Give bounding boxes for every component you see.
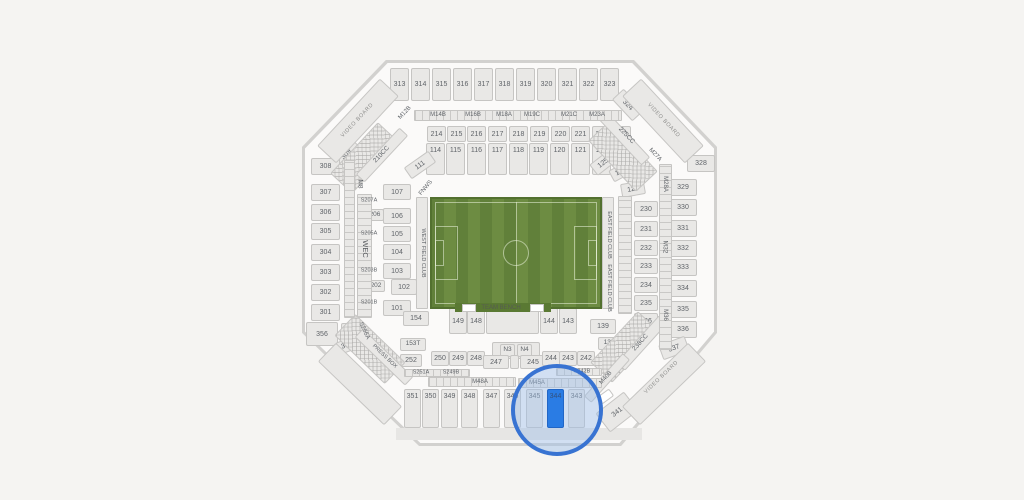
section-label: 214: [431, 131, 443, 138]
section-316[interactable]: 316: [453, 68, 472, 101]
field-marking: [435, 240, 444, 266]
section-label: 304: [320, 249, 332, 256]
section-118[interactable]: 118: [509, 143, 528, 175]
section-231[interactable]: 231: [634, 221, 658, 237]
m14b-label: M14B: [430, 112, 446, 118]
s201b-label: S201B: [361, 300, 378, 306]
m27a-label: M27A: [647, 147, 662, 163]
section-350[interactable]: 350: [422, 389, 439, 428]
section-319[interactable]: 319: [516, 68, 535, 101]
section-label: 114: [430, 147, 441, 154]
east-inner-strip[interactable]: [618, 196, 632, 314]
wec-label: WEC: [361, 240, 369, 258]
section-label: 106: [391, 213, 403, 220]
section-102[interactable]: 102: [391, 279, 417, 295]
section-220[interactable]: 220: [551, 126, 570, 142]
section-216[interactable]: 216: [467, 126, 486, 142]
section-label: 319: [520, 81, 532, 88]
section-217[interactable]: 217: [488, 126, 507, 142]
section-314[interactable]: 314: [411, 68, 430, 101]
section-143[interactable]: 143: [559, 308, 577, 334]
section-label: 121: [575, 147, 587, 154]
section-label: 321: [562, 81, 574, 88]
section-219[interactable]: 219: [530, 126, 549, 142]
section-305[interactable]: 305: [311, 223, 340, 240]
section-label: 103: [391, 268, 403, 275]
section-label: 308: [320, 163, 332, 170]
section-label: 315: [436, 81, 448, 88]
section-329[interactable]: 329: [669, 179, 697, 196]
section-label: 252: [405, 357, 417, 364]
section-321[interactable]: 321: [558, 68, 577, 101]
soccer-field: [430, 197, 602, 309]
section-215[interactable]: 215: [447, 126, 466, 142]
section-label: 218: [513, 131, 525, 138]
section-label: 216: [471, 131, 483, 138]
section-label: 235: [640, 300, 652, 307]
m32-label: M32: [661, 241, 668, 254]
section-235[interactable]: 235: [634, 295, 658, 311]
section-335[interactable]: 335: [669, 301, 697, 318]
field-marking: [588, 240, 597, 266]
section-label: 334: [677, 285, 689, 292]
section-label: 245: [527, 359, 539, 366]
section-332[interactable]: 332: [669, 240, 697, 257]
section-331[interactable]: 331: [669, 220, 697, 237]
section-label: 244: [545, 355, 557, 362]
section-221[interactable]: 221: [571, 126, 590, 142]
west-field-club-label: WEST FIELD CLUB: [419, 228, 425, 277]
east-field-club-label: EAST FIELD CLUB: [605, 264, 611, 312]
section-label: 119: [533, 147, 544, 154]
section-214[interactable]: 214: [427, 126, 446, 142]
section-label: 303: [320, 269, 332, 276]
s251a-label: S251A: [413, 370, 430, 376]
section-349[interactable]: 349: [441, 389, 458, 428]
section-label: 120: [554, 147, 566, 154]
section-label: 153T: [406, 341, 421, 348]
section-label: 317: [478, 81, 490, 88]
section-111[interactable]: 111: [404, 151, 437, 180]
m18a-label: M18A: [496, 112, 512, 118]
section-348[interactable]: 348: [461, 389, 478, 428]
m21c-label: M21C: [561, 112, 577, 118]
section-115[interactable]: 115: [446, 143, 465, 175]
section-label: N3: [503, 347, 511, 354]
s205a-label: S205A: [361, 231, 378, 237]
section-label: 330: [677, 204, 689, 211]
section-250[interactable]: 250: [431, 351, 449, 366]
section-301[interactable]: 301: [311, 304, 340, 321]
section-label: 335: [677, 306, 689, 313]
section-317[interactable]: 317: [474, 68, 493, 101]
section-label: 301: [320, 309, 332, 316]
section-302[interactable]: 302: [311, 284, 340, 301]
section-label: 115: [450, 147, 461, 154]
section-label: 148: [470, 318, 482, 325]
team-bench-label: TEAM BENCH: [481, 305, 520, 311]
highlight-ring: [511, 364, 603, 456]
section-304[interactable]: 304: [311, 244, 340, 261]
section-label: 202: [371, 283, 382, 290]
section-label: 322: [583, 81, 595, 88]
section-label: 314: [415, 81, 427, 88]
section-318[interactable]: 318: [495, 68, 514, 101]
section-121[interactable]: 121: [571, 143, 590, 175]
section-249[interactable]: 249: [449, 351, 467, 366]
section-label: 320: [541, 81, 553, 88]
section-119[interactable]: 119: [529, 143, 548, 175]
section-label: 118: [513, 147, 524, 154]
section-label: 144: [543, 318, 555, 325]
east-field-club-label: EAST FIELD CLUB: [605, 211, 611, 259]
section-label: 313: [394, 81, 406, 88]
section-107[interactable]: 107: [383, 184, 411, 200]
section-label: 102: [398, 284, 410, 291]
section-104[interactable]: 104: [383, 244, 411, 260]
section-label: 306: [320, 209, 332, 216]
section-218[interactable]: 218: [509, 126, 528, 142]
section-label: 215: [451, 131, 463, 138]
section-label: 307: [320, 189, 332, 196]
m28a-label: M28A: [662, 176, 668, 192]
section-116[interactable]: 116: [467, 143, 486, 175]
section-label: 139: [597, 323, 609, 330]
section-347[interactable]: 347: [483, 389, 500, 428]
section-306[interactable]: 306: [311, 204, 340, 221]
section-303[interactable]: 303: [311, 264, 340, 281]
section-154[interactable]: 154: [403, 311, 429, 326]
section-label: 231: [640, 226, 652, 233]
section-105[interactable]: 105: [383, 226, 411, 242]
section-label: 149: [452, 318, 464, 325]
section-label: 336: [677, 326, 689, 333]
section-label: 329: [677, 184, 689, 191]
section-label: 111: [414, 159, 427, 171]
section-label: 219: [534, 131, 546, 138]
bench-box: [530, 304, 544, 312]
section-label: 234: [640, 282, 652, 289]
section-label: 248: [470, 355, 482, 362]
section-label: 143: [562, 318, 574, 325]
fnws-label: FNWS: [418, 179, 434, 196]
m16b-label: M16B: [465, 112, 481, 118]
section-139[interactable]: 139: [590, 319, 616, 334]
bench-box: [462, 304, 476, 312]
section-103[interactable]: 103: [383, 263, 411, 279]
section-label: 318: [499, 81, 511, 88]
s249b-label: S249B: [443, 370, 460, 376]
stand-block[interactable]: [510, 355, 519, 369]
section-label: 348: [464, 393, 476, 400]
section-117[interactable]: 117: [488, 143, 507, 175]
m48a-label: M48A: [472, 379, 488, 385]
section-230[interactable]: 230: [634, 201, 658, 217]
section-label: 243: [562, 355, 574, 362]
section-106[interactable]: 106: [383, 208, 411, 224]
section-label: 351: [407, 393, 419, 400]
section-label: 250: [434, 355, 446, 362]
section-307[interactable]: 307: [311, 184, 340, 201]
section-320[interactable]: 320: [537, 68, 556, 101]
field-marking: [503, 240, 529, 266]
section-label: 116: [471, 147, 482, 154]
section-label: 347: [486, 393, 498, 400]
section-label: 333: [677, 264, 689, 271]
section-label: N4: [520, 347, 528, 354]
section-label: 349: [444, 393, 456, 400]
section-330[interactable]: 330: [669, 199, 697, 216]
section-label: 105: [391, 231, 403, 238]
m23a-label: M23A: [589, 112, 605, 118]
section-label: 305: [320, 228, 332, 235]
stadium-seating-map: 3133143153163173183193203213223233243092…: [0, 0, 1024, 500]
m19c-label: M19C: [524, 112, 540, 118]
section-label: 104: [391, 249, 403, 256]
section-label: 316: [457, 81, 469, 88]
section-label: 249: [452, 355, 464, 362]
section-label: 328: [695, 160, 707, 167]
section-label: 302: [320, 289, 332, 296]
s207a-label: S207A: [361, 198, 378, 204]
section-322[interactable]: 322: [579, 68, 598, 101]
m12b-label: M12B: [397, 105, 412, 121]
section-333[interactable]: 333: [669, 259, 697, 276]
section-label: 217: [492, 131, 504, 138]
section-label: 101: [391, 305, 403, 312]
section-label: 247: [490, 359, 502, 366]
section-label: 107: [391, 189, 403, 196]
section-334[interactable]: 334: [669, 280, 697, 297]
section-234[interactable]: 234: [634, 277, 658, 293]
section-356[interactable]: 356: [306, 322, 338, 346]
section-315[interactable]: 315: [432, 68, 451, 101]
mezzanine-east-strip[interactable]: [659, 164, 672, 350]
section-233[interactable]: 233: [634, 258, 658, 274]
section-label: 332: [677, 245, 689, 252]
section-label: 323: [604, 81, 616, 88]
west-upper-strip[interactable]: [344, 160, 355, 318]
m36-label: M36: [662, 309, 668, 321]
m8-label: M8: [356, 179, 363, 188]
section-label: 221: [575, 131, 587, 138]
section-247[interactable]: 247: [483, 355, 509, 369]
section-label: 341: [610, 406, 624, 419]
section-label: 331: [677, 225, 689, 232]
section-351[interactable]: 351: [404, 389, 421, 428]
section-label: 220: [555, 131, 567, 138]
section-232[interactable]: 232: [634, 240, 658, 256]
section-label: 233: [640, 263, 652, 270]
section-label: 356: [316, 331, 328, 338]
section-153t[interactable]: 153T: [400, 338, 426, 351]
section-label: 232: [640, 245, 652, 252]
section-120[interactable]: 120: [550, 143, 569, 175]
section-label: 154: [410, 315, 422, 322]
s203b-label: S203B: [361, 268, 378, 274]
section-label: 350: [425, 393, 437, 400]
section-label: 117: [492, 147, 503, 154]
section-label: 230: [640, 206, 652, 213]
